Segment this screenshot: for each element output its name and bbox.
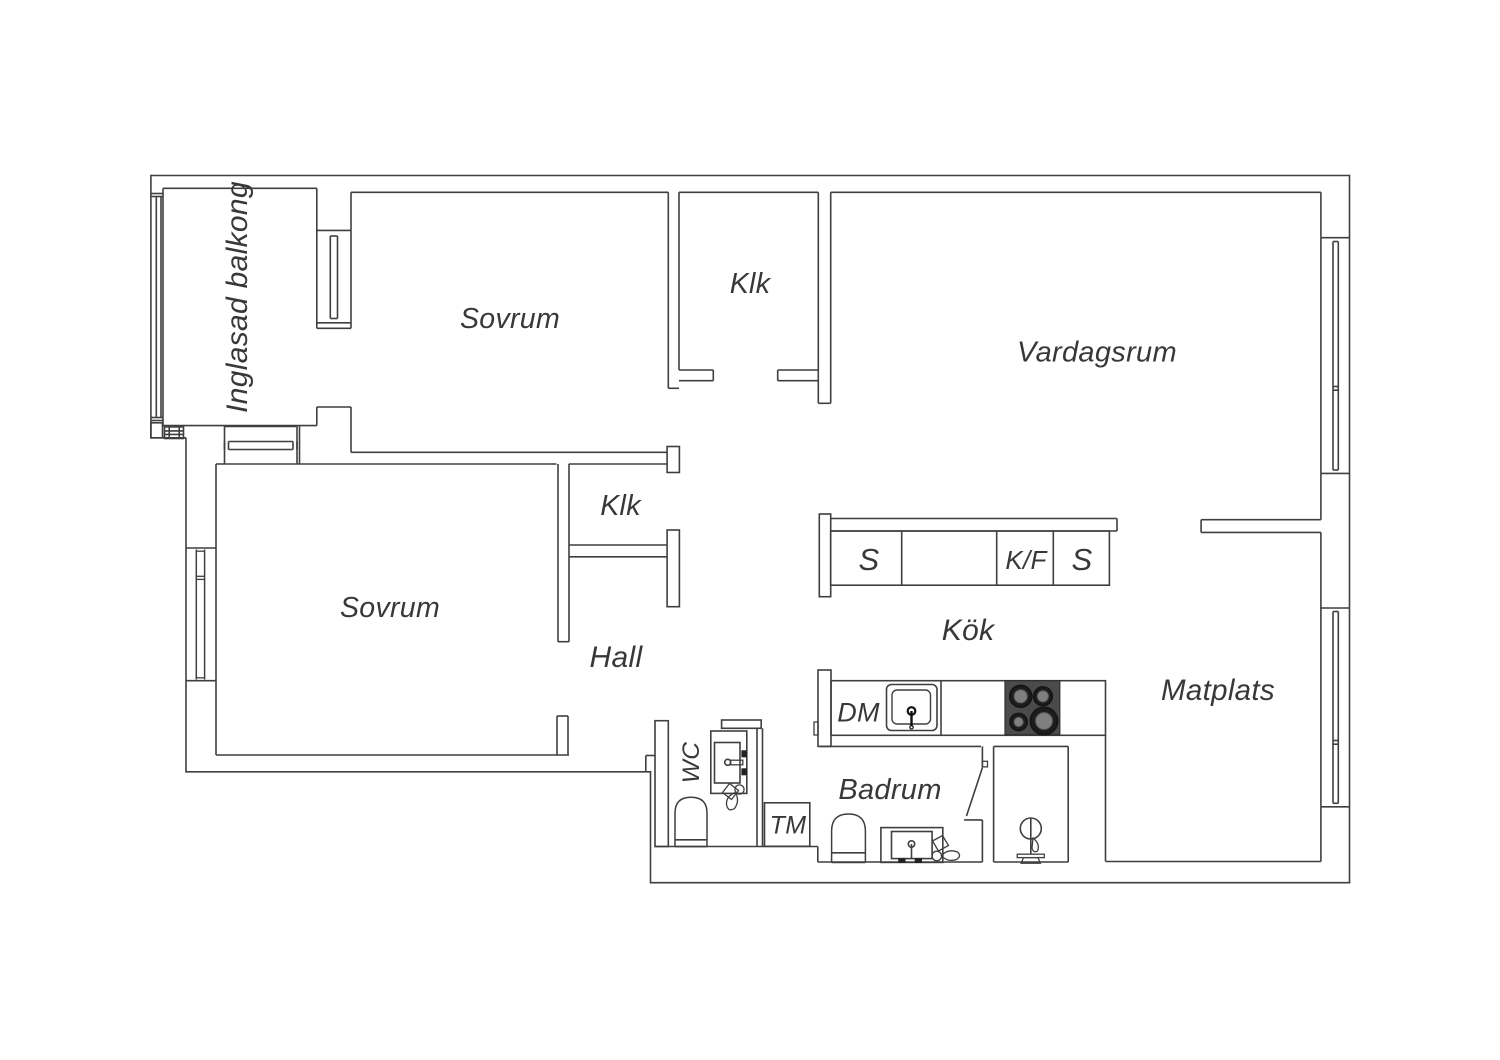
- svg-text:Klk: Klk: [600, 490, 642, 522]
- svg-text:S: S: [1072, 542, 1093, 577]
- svg-text:Badrum: Badrum: [838, 774, 941, 806]
- svg-text:Hall: Hall: [590, 641, 644, 674]
- svg-text:Sovrum: Sovrum: [340, 592, 440, 624]
- svg-text:Inglasad balkong: Inglasad balkong: [221, 181, 254, 413]
- svg-text:WC: WC: [678, 742, 705, 783]
- svg-text:Kök: Kök: [942, 614, 996, 647]
- svg-text:Matplats: Matplats: [1161, 674, 1275, 707]
- svg-text:Vardagsrum: Vardagsrum: [1017, 337, 1177, 369]
- svg-text:S: S: [859, 542, 880, 577]
- svg-text:DM: DM: [837, 698, 880, 728]
- svg-text:Klk: Klk: [730, 268, 772, 300]
- svg-text:TM: TM: [770, 812, 807, 840]
- svg-text:K/F: K/F: [1005, 545, 1048, 575]
- svg-text:Sovrum: Sovrum: [460, 303, 560, 335]
